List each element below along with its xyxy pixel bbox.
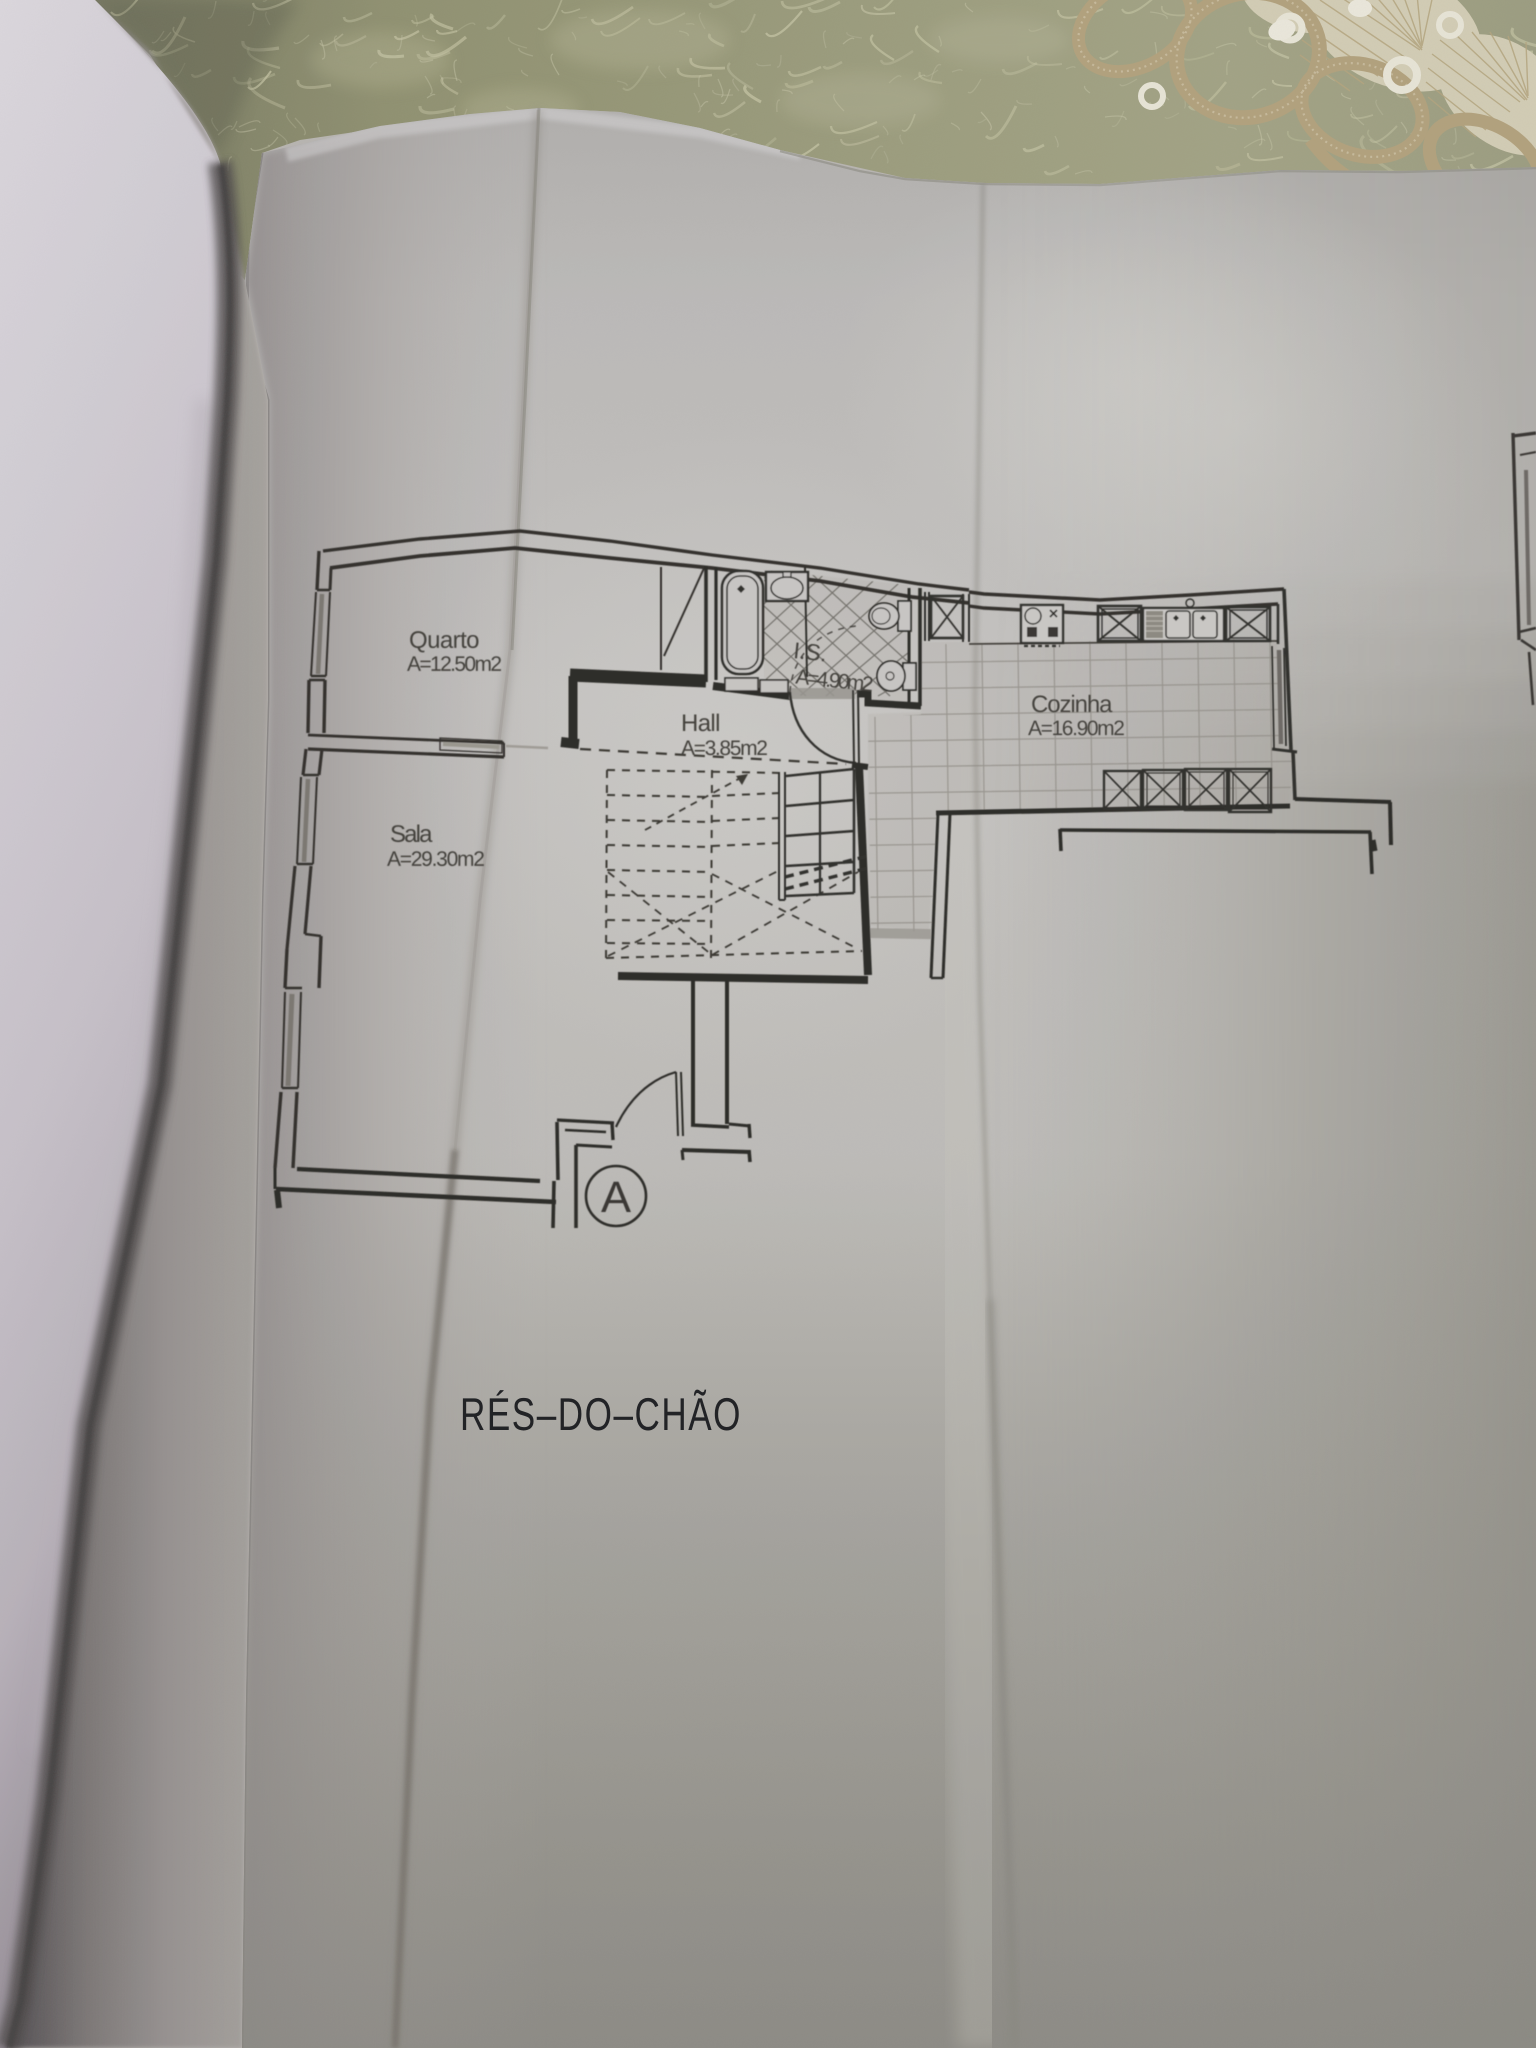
svg-text:A=12.50m2: A=12.50m2 [407, 653, 503, 676]
svg-text:Sala: Sala [390, 821, 434, 848]
svg-text:Hall: Hall [681, 710, 722, 737]
svg-text:Quarto: Quarto [409, 627, 481, 654]
svg-text:Cozinha: Cozinha [1031, 691, 1114, 718]
svg-text:A=29.30m2: A=29.30m2 [387, 848, 486, 871]
svg-text:A: A [601, 1173, 632, 1222]
svg-text:RÉS–DO–CHÃO: RÉS–DO–CHÃO [460, 1388, 742, 1440]
svg-text:A=3.85m2: A=3.85m2 [681, 737, 769, 760]
svg-text:I.S.: I.S. [792, 637, 830, 667]
svg-text:A=16.90m2: A=16.90m2 [1028, 717, 1126, 740]
